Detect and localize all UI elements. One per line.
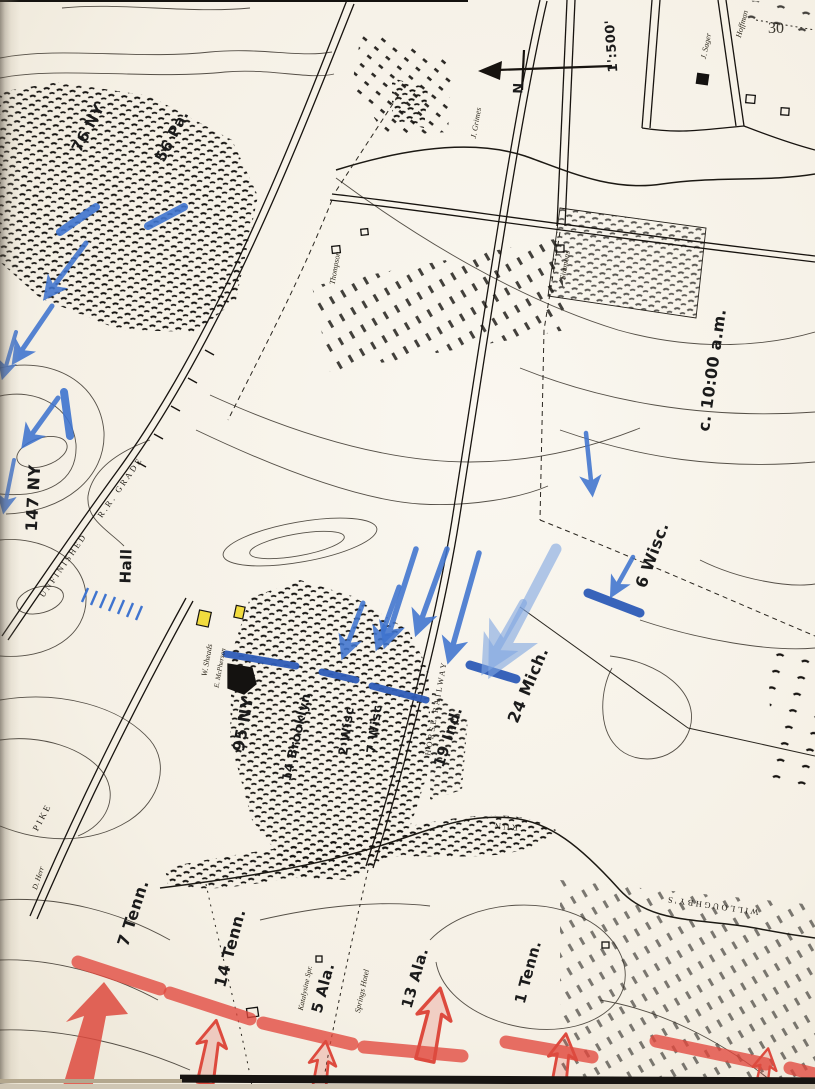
union-label-hall: Hall [116,548,135,584]
page-bottom-edge-left [0,1079,182,1083]
page-top-edge [0,0,468,2]
stream-label-run: RUN [492,821,518,833]
book-binding-shadow [0,0,20,1089]
scanned-battle-map-page: 76 NY 56 Pa. 147 NY Hall 95 NY 14 Brookl… [0,0,815,1089]
artillery-battery-symbol [82,588,142,620]
railroad-grade [137,350,214,467]
yellow-highlights [196,605,245,627]
page-bottom-paper [0,1084,815,1089]
north-arrow [478,50,612,90]
north-label: N [511,82,526,94]
union-label-147ny: 147 NY [22,464,44,532]
page-number: 30 [768,20,784,38]
